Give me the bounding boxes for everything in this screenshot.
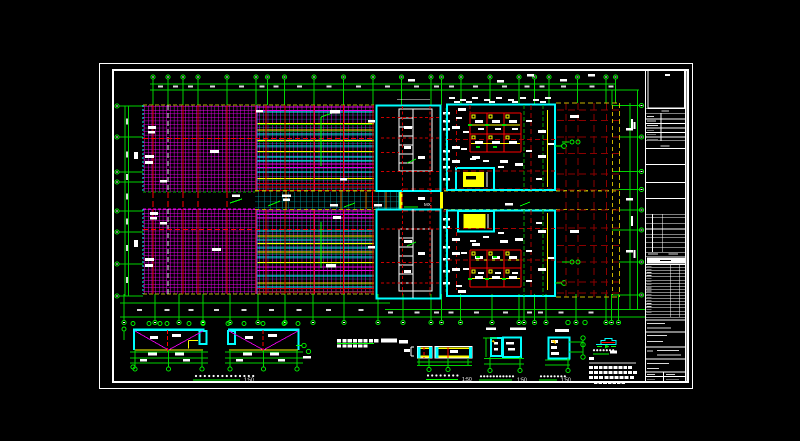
svg-text:MX: MX [424,202,431,207]
svg-text:1:50: 1:50 [462,377,472,383]
svg-text:1:50: 1:50 [244,378,254,384]
svg-text:1:50: 1:50 [561,378,571,384]
svg-text:1:50: 1:50 [517,378,527,384]
